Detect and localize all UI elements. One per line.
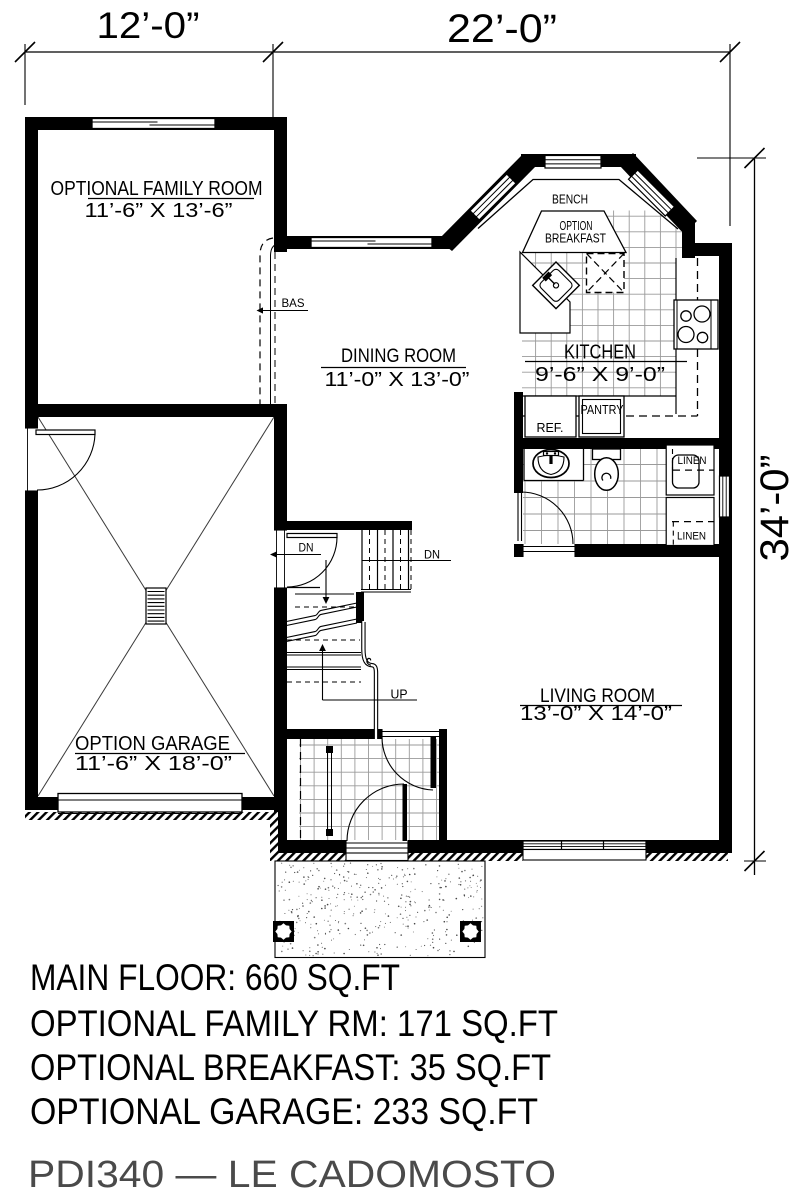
svg-text:DINING ROOM: DINING ROOM [341, 346, 456, 367]
svg-text:OPTIONAL GARAGE: 233 SQ.FT: OPTIONAL GARAGE: 233 SQ.FT [30, 1091, 538, 1132]
svg-text:11’-6” X 18’-0”: 11’-6” X 18’-0” [75, 752, 232, 775]
svg-text:PDI340 — LE CADOMOSTO: PDI340 — LE CADOMOSTO [28, 1154, 556, 1196]
svg-text:OPTIONAL BREAKFAST: 35 SQ.FT: OPTIONAL BREAKFAST: 35 SQ.FT [30, 1047, 551, 1088]
svg-text:MAIN FLOOR: 660 SQ.FT: MAIN FLOOR: 660 SQ.FT [30, 957, 400, 998]
svg-text:11’-0” X 13’-0”: 11’-0” X 13’-0” [325, 368, 470, 391]
svg-text:UP: UP [391, 687, 408, 702]
svg-text:BAS: BAS [282, 298, 305, 310]
svg-text:9’-6” X 9’-0”: 9’-6” X 9’-0” [535, 363, 665, 386]
svg-text:OPTIONAL FAMILY RM: 171 SQ.FT: OPTIONAL FAMILY RM: 171 SQ.FT [30, 1003, 558, 1044]
svg-text:PANTRY: PANTRY [581, 403, 625, 417]
svg-text:OPTIONAL FAMILY ROOM: OPTIONAL FAMILY ROOM [51, 177, 263, 200]
svg-text:KITCHEN: KITCHEN [564, 341, 636, 364]
svg-text:22’-0”: 22’-0” [447, 7, 557, 51]
svg-text:34’-0”: 34’-0” [753, 455, 797, 562]
svg-text:REF.: REF. [537, 421, 564, 435]
svg-text:LINEN: LINEN [678, 455, 707, 467]
svg-text:BREAKFAST: BREAKFAST [545, 232, 606, 246]
svg-text:DN: DN [424, 548, 440, 562]
svg-text:DN: DN [299, 541, 314, 555]
svg-text:11’-6” X 13’-6”: 11’-6” X 13’-6” [85, 199, 233, 222]
svg-text:13’-0” X 14’-0”: 13’-0” X 14’-0” [520, 702, 672, 725]
svg-text:LINEN: LINEN [677, 531, 706, 543]
svg-text:BENCH: BENCH [552, 193, 588, 207]
svg-text:12’-0”: 12’-0” [97, 5, 200, 46]
